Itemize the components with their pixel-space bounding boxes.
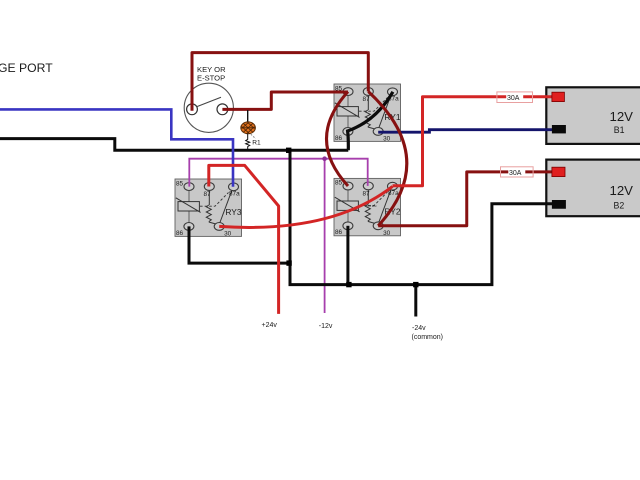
svg-text:(common): (common) <box>412 334 444 341</box>
svg-text:86: 86 <box>335 135 343 142</box>
svg-text:30: 30 <box>383 135 391 142</box>
svg-text:86: 86 <box>335 229 343 236</box>
svg-text:+24v: +24v <box>262 322 278 329</box>
svg-text:B2: B2 <box>614 200 625 210</box>
svg-text:-24v: -24v <box>412 325 426 332</box>
svg-text:RY3: RY3 <box>225 207 241 217</box>
svg-text:87: 87 <box>363 190 371 197</box>
svg-text:E-STOP: E-STOP <box>197 74 225 83</box>
svg-text:85: 85 <box>335 180 343 187</box>
svg-text:30A: 30A <box>507 95 520 102</box>
svg-text:-12v: -12v <box>319 323 333 330</box>
svg-text:R1: R1 <box>252 140 261 147</box>
svg-text:30: 30 <box>383 230 391 237</box>
svg-text:30A: 30A <box>509 170 522 177</box>
svg-text:ec wu: ec wu <box>368 204 377 208</box>
svg-text:30: 30 <box>224 230 232 237</box>
svg-text:87: 87 <box>204 191 212 198</box>
svg-text:86: 86 <box>176 230 184 237</box>
svg-text:12V: 12V <box>610 109 634 124</box>
svg-text:CHARGE PORT: CHARGE PORT <box>0 61 53 75</box>
svg-text:12V: 12V <box>610 183 634 198</box>
svg-text:B1: B1 <box>614 125 625 135</box>
svg-text:87: 87 <box>363 96 371 103</box>
svg-text:85: 85 <box>176 180 184 187</box>
svg-text:87a: 87a <box>229 191 240 198</box>
